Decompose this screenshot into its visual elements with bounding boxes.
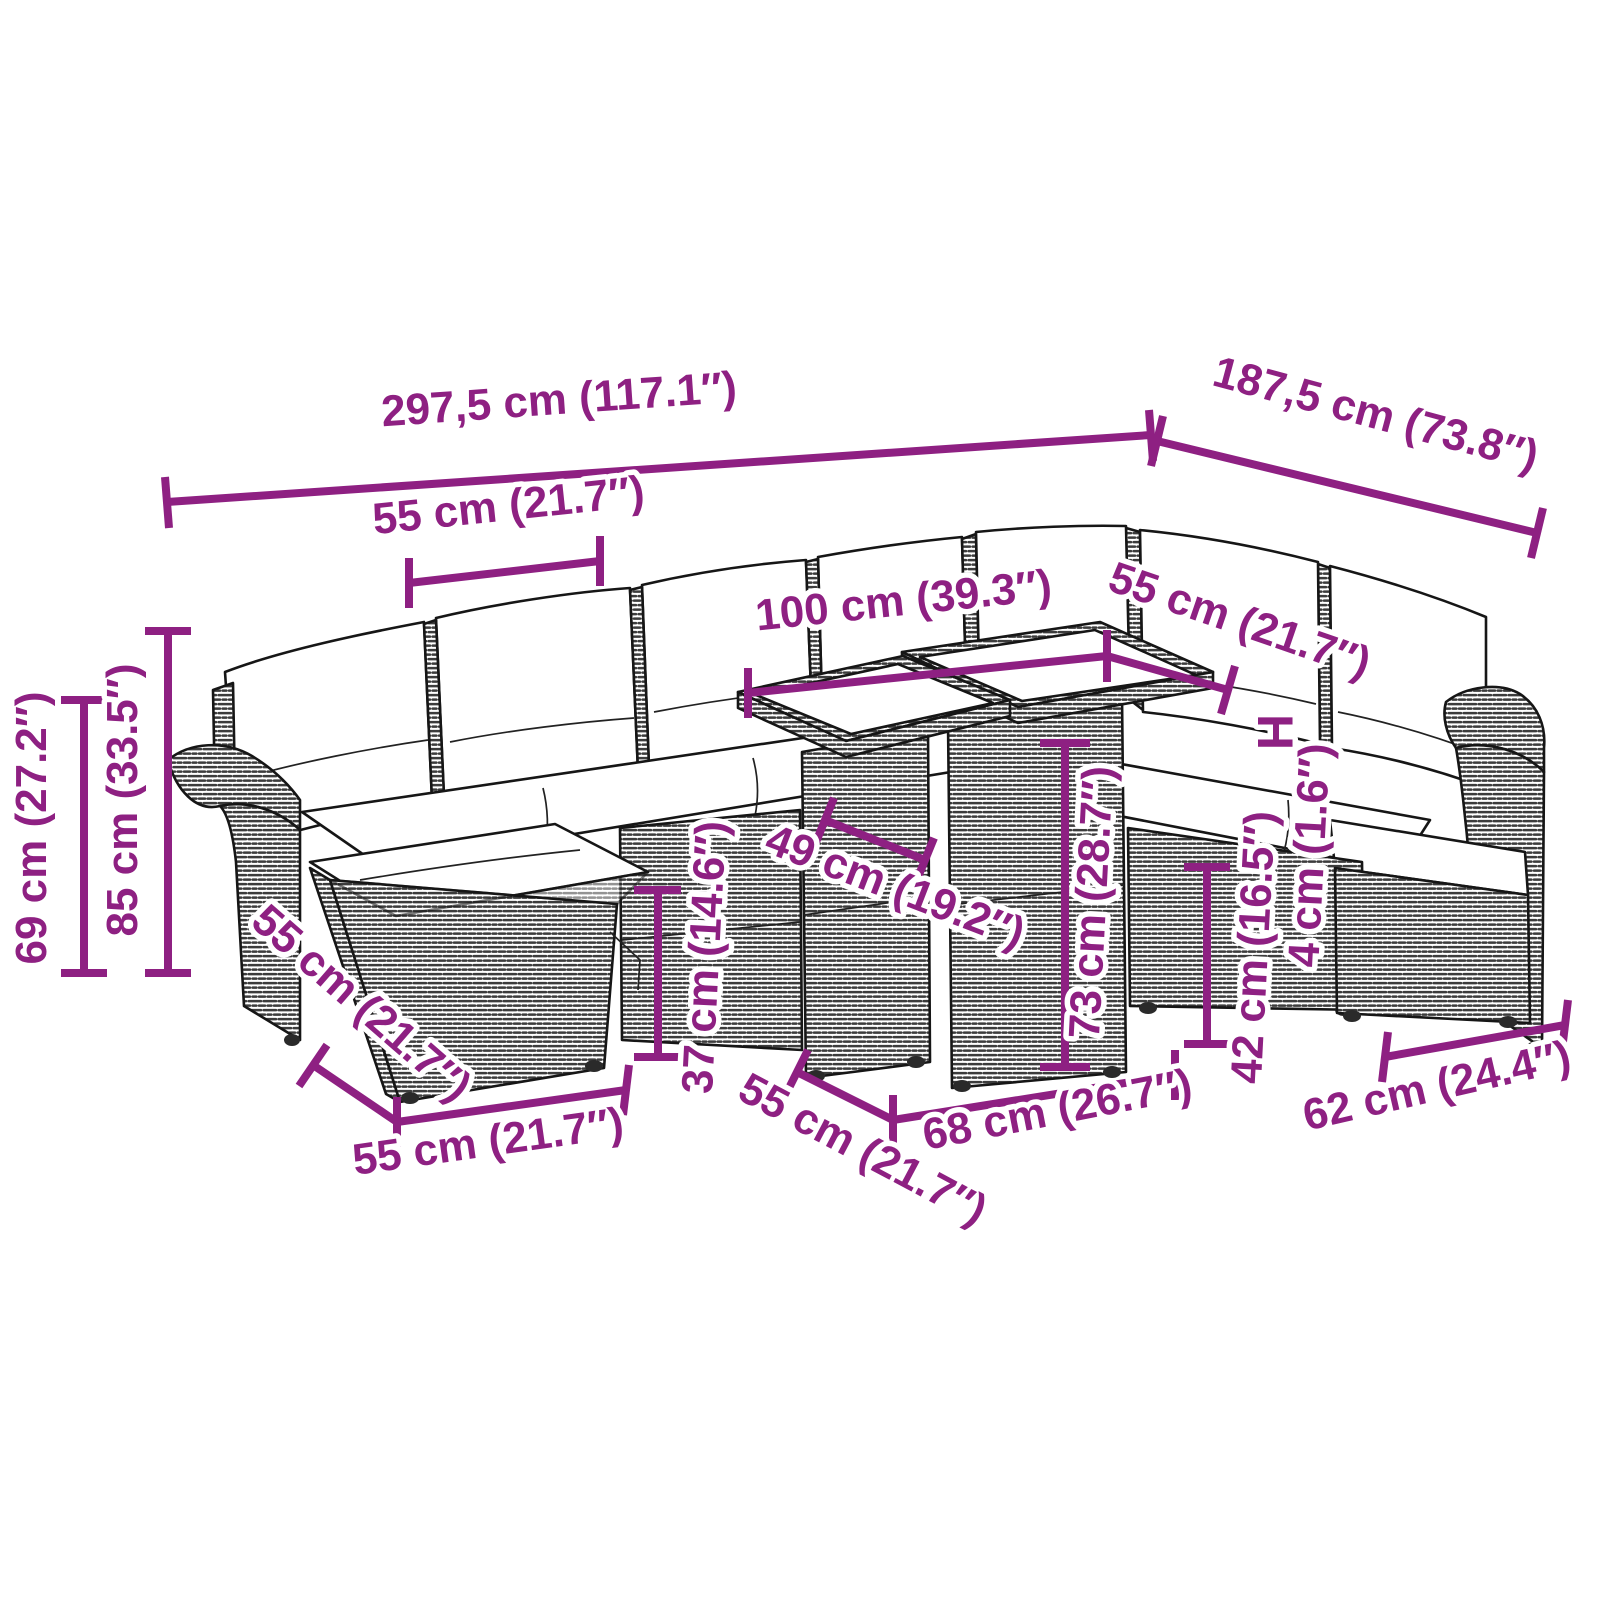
dim-total-height-line [145,631,191,973]
left-armrest [168,745,300,1046]
ottoman [310,824,648,1104]
dim-total-depth-label: 187,5 cm (73.8″) [1208,347,1543,481]
dimension-diagram: 297,5 cm (117.1″) 187,5 cm (73.8″) 55 cm… [0,0,1600,1600]
dim-total-width-label: 297,5 cm (117.1″) [380,363,739,437]
armchair-front [1335,868,1530,1028]
dim-total-height-label: 85 cm (33.5″) [98,663,147,936]
dim-back-height-label: 69 cm (27.2″) [7,691,56,964]
dim-total-width-line [165,410,1153,528]
diagram-svg: 297,5 cm (117.1″) 187,5 cm (73.8″) 55 cm… [0,0,1600,1600]
